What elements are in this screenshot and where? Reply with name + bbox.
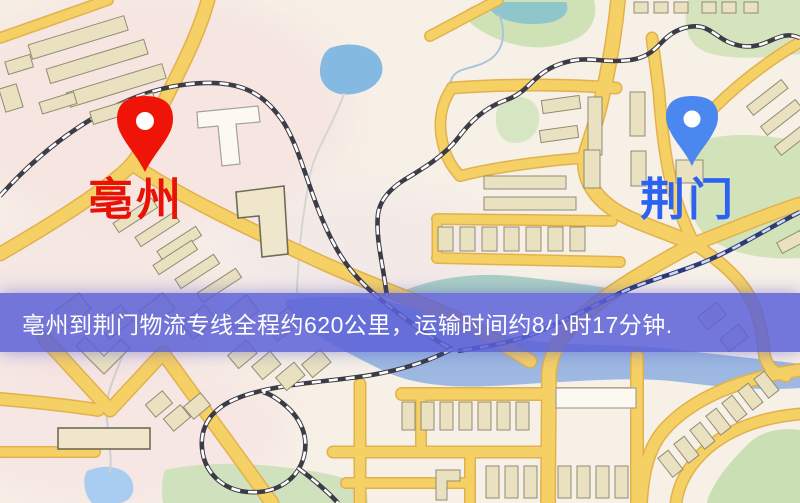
- map-background: [0, 0, 800, 503]
- map-image: 亳州 荆门 亳州到荆门物流专线全程约620公里，运输时间约8小时17分钟.: [0, 0, 800, 503]
- route-info-text: 亳州到荆门物流专线全程约620公里，运输时间约8小时17分钟.: [0, 306, 673, 340]
- origin-city-label: 亳州: [88, 177, 184, 222]
- destination-city-label: 荆门: [640, 177, 736, 222]
- route-info-banner: 亳州到荆门物流专线全程约620公里，运输时间约8小时17分钟.: [0, 293, 800, 352]
